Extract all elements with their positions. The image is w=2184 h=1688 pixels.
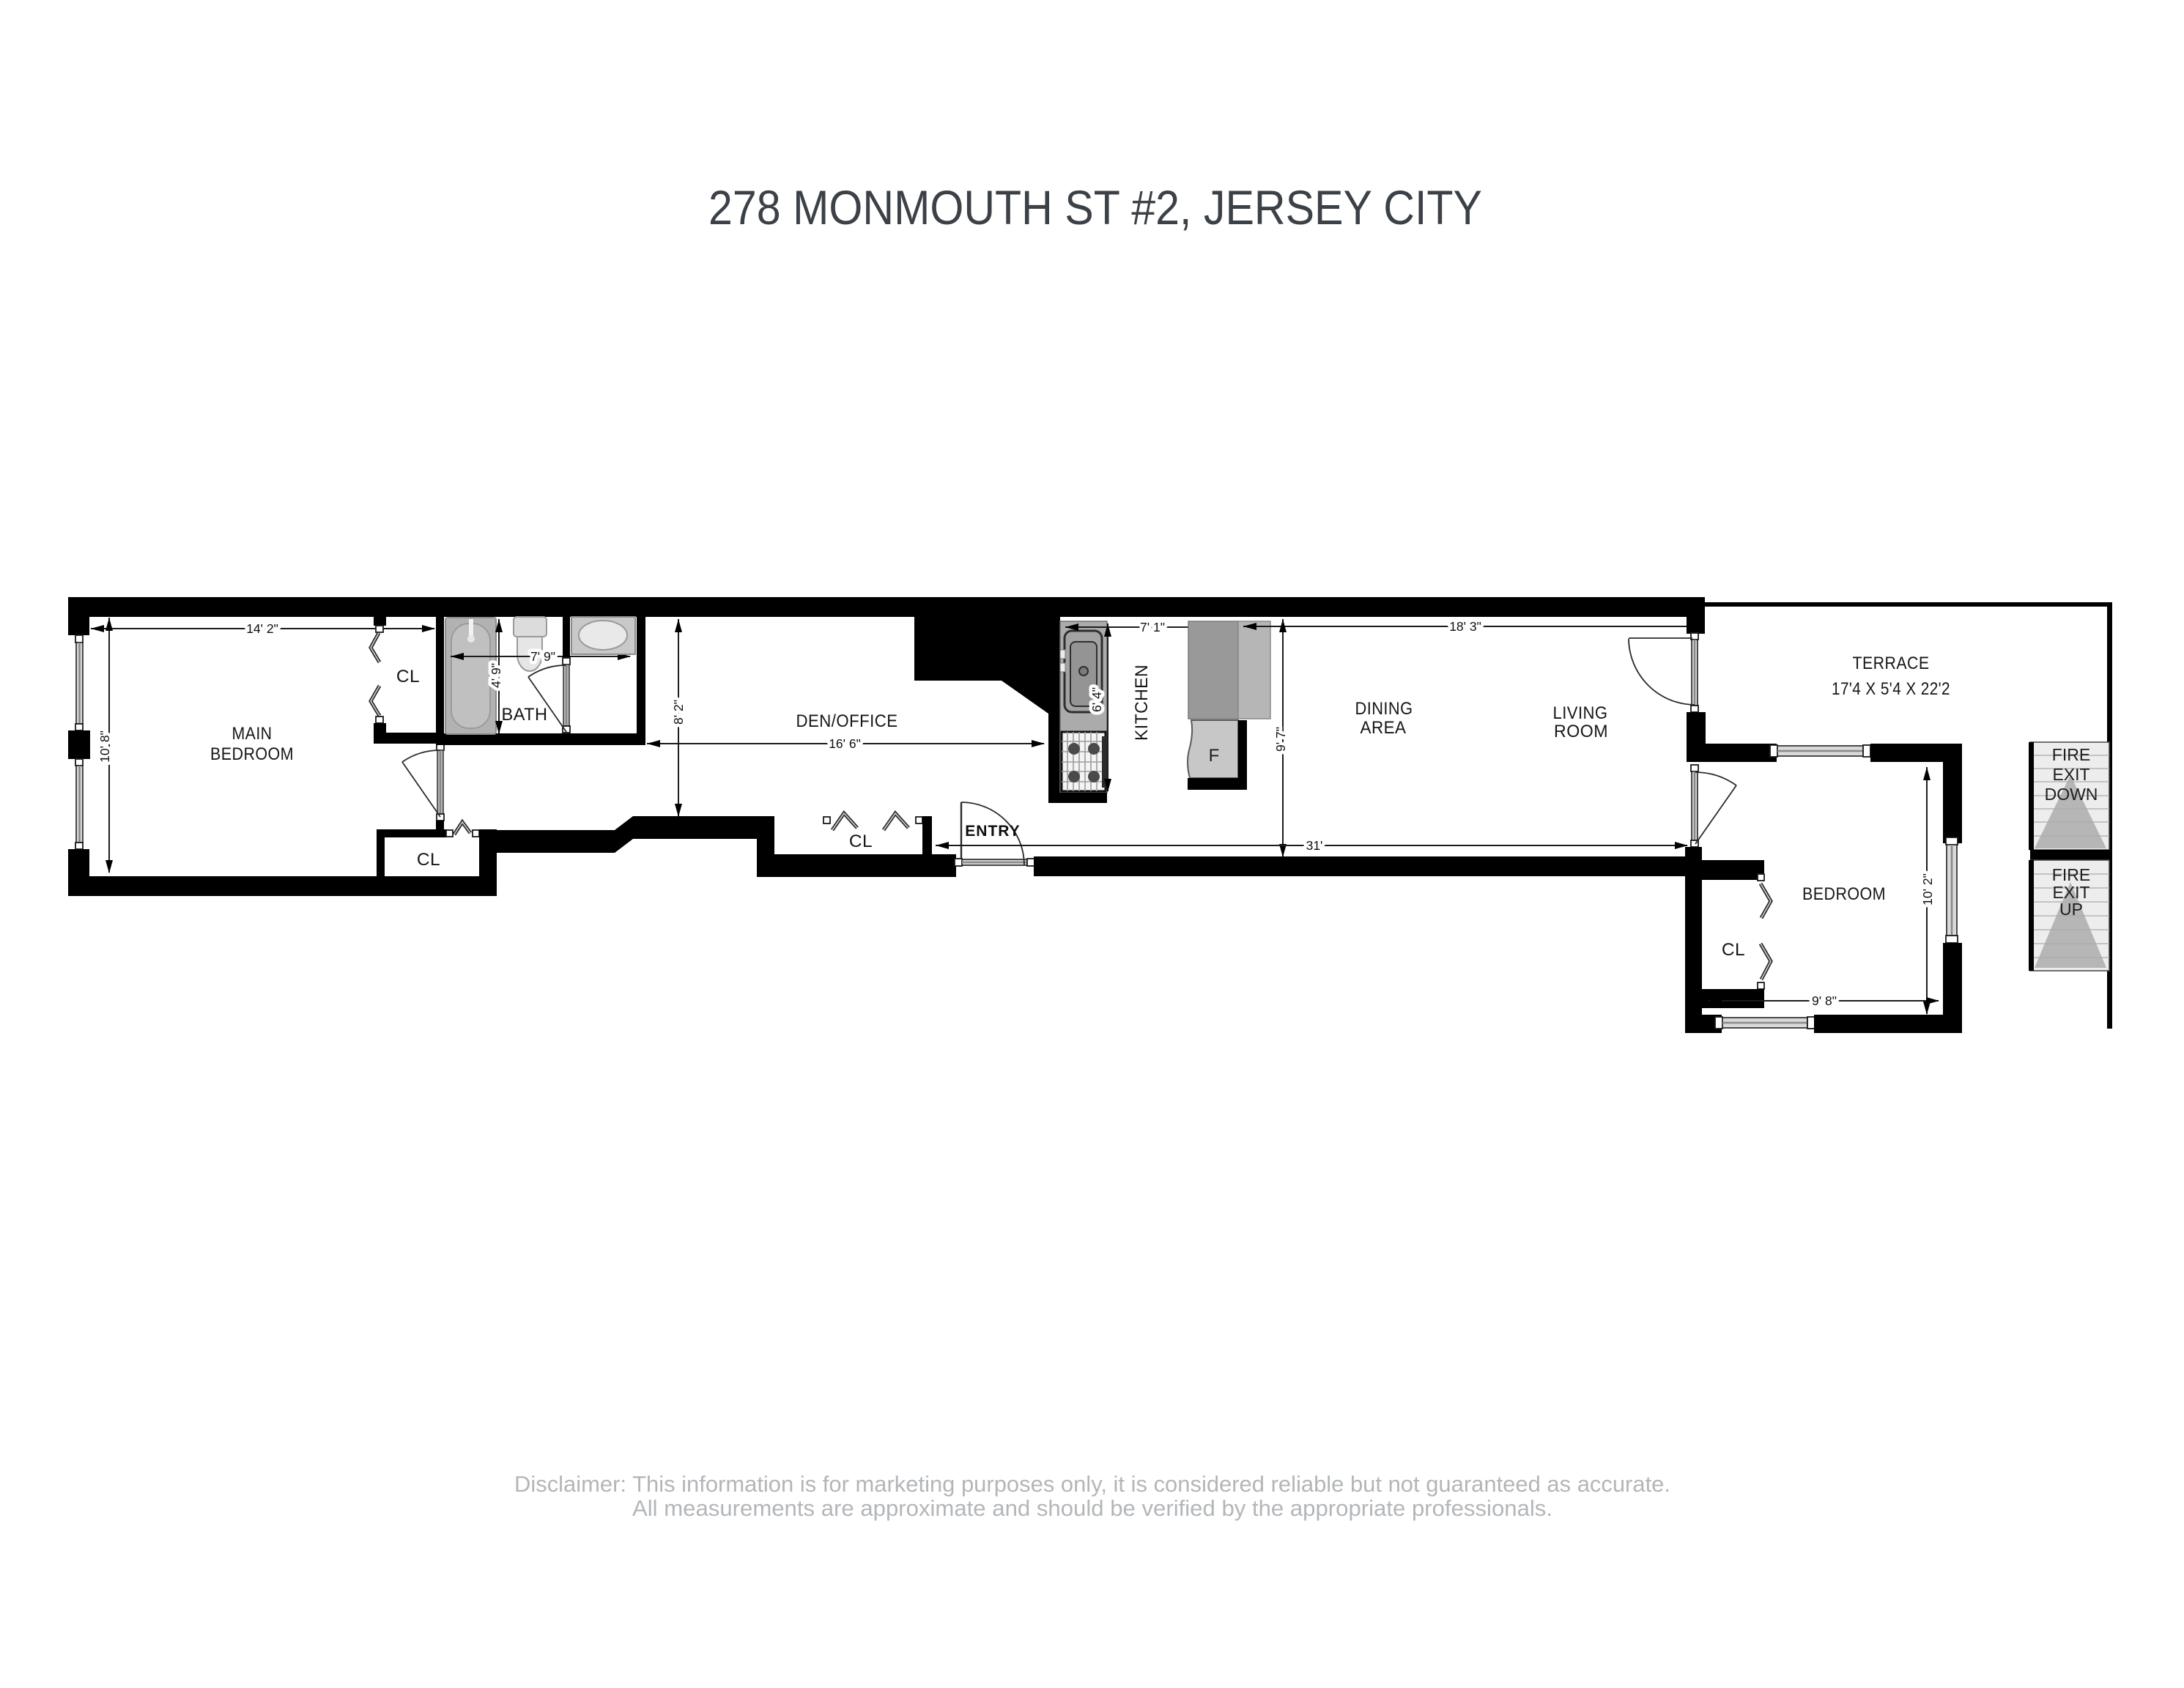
- svg-text:ROOM: ROOM: [1554, 722, 1608, 741]
- svg-text:DOWN: DOWN: [2045, 785, 2098, 804]
- svg-text:LIVING: LIVING: [1553, 703, 1608, 723]
- svg-text:BEDROOM: BEDROOM: [210, 744, 294, 764]
- svg-text:31': 31': [1306, 838, 1323, 853]
- svg-text:14' 2": 14' 2": [246, 621, 278, 636]
- svg-text:TERRACE: TERRACE: [1853, 654, 1930, 673]
- svg-text:16' 6": 16' 6": [829, 736, 861, 751]
- svg-text:6' 4": 6' 4": [1089, 687, 1104, 712]
- svg-text:CL: CL: [396, 667, 420, 686]
- svg-text:All measurements are approxima: All measurements are approximate and sho…: [632, 1496, 1552, 1521]
- svg-text:UP: UP: [2059, 900, 2083, 919]
- svg-text:17'4 X 5'4 X 22'2: 17'4 X 5'4 X 22'2: [1832, 679, 1950, 699]
- svg-text:F: F: [1209, 746, 1220, 766]
- svg-text:ENTRY: ENTRY: [965, 823, 1020, 840]
- svg-text:KITCHEN: KITCHEN: [1132, 665, 1152, 741]
- svg-text:278 MONMOUTH ST #2, JERSEY CIT: 278 MONMOUTH ST #2, JERSEY CITY: [708, 180, 1482, 234]
- svg-text:Disclaimer: This information i: Disclaimer: This information is for mark…: [514, 1472, 1670, 1497]
- svg-text:BATH: BATH: [502, 705, 548, 725]
- svg-text:DINING: DINING: [1355, 699, 1413, 719]
- svg-text:18' 3": 18' 3": [1449, 619, 1481, 634]
- svg-text:7' 9": 7' 9": [530, 649, 555, 664]
- svg-text:DEN/OFFICE: DEN/OFFICE: [796, 711, 898, 731]
- svg-text:CL: CL: [1722, 940, 1745, 960]
- svg-text:FIRE: FIRE: [2052, 745, 2090, 764]
- svg-text:AREA: AREA: [1361, 718, 1407, 738]
- svg-text:4' 9": 4' 9": [489, 663, 503, 688]
- svg-text:EXIT: EXIT: [2052, 765, 2089, 784]
- svg-text:10' 2": 10' 2": [1920, 873, 1935, 906]
- svg-text:CL: CL: [417, 850, 440, 870]
- svg-text:9' 7": 9' 7": [1273, 727, 1288, 752]
- svg-text:10' 8": 10' 8": [97, 730, 112, 763]
- svg-text:FIRE: FIRE: [2052, 865, 2090, 884]
- svg-text:9' 8": 9' 8": [1812, 993, 1837, 1008]
- svg-text:BEDROOM: BEDROOM: [1802, 884, 1886, 904]
- svg-text:CL: CL: [849, 832, 873, 851]
- svg-text:8' 2": 8' 2": [671, 700, 686, 725]
- svg-text:MAIN: MAIN: [232, 724, 273, 744]
- svg-text:7' 1": 7' 1": [1140, 620, 1165, 634]
